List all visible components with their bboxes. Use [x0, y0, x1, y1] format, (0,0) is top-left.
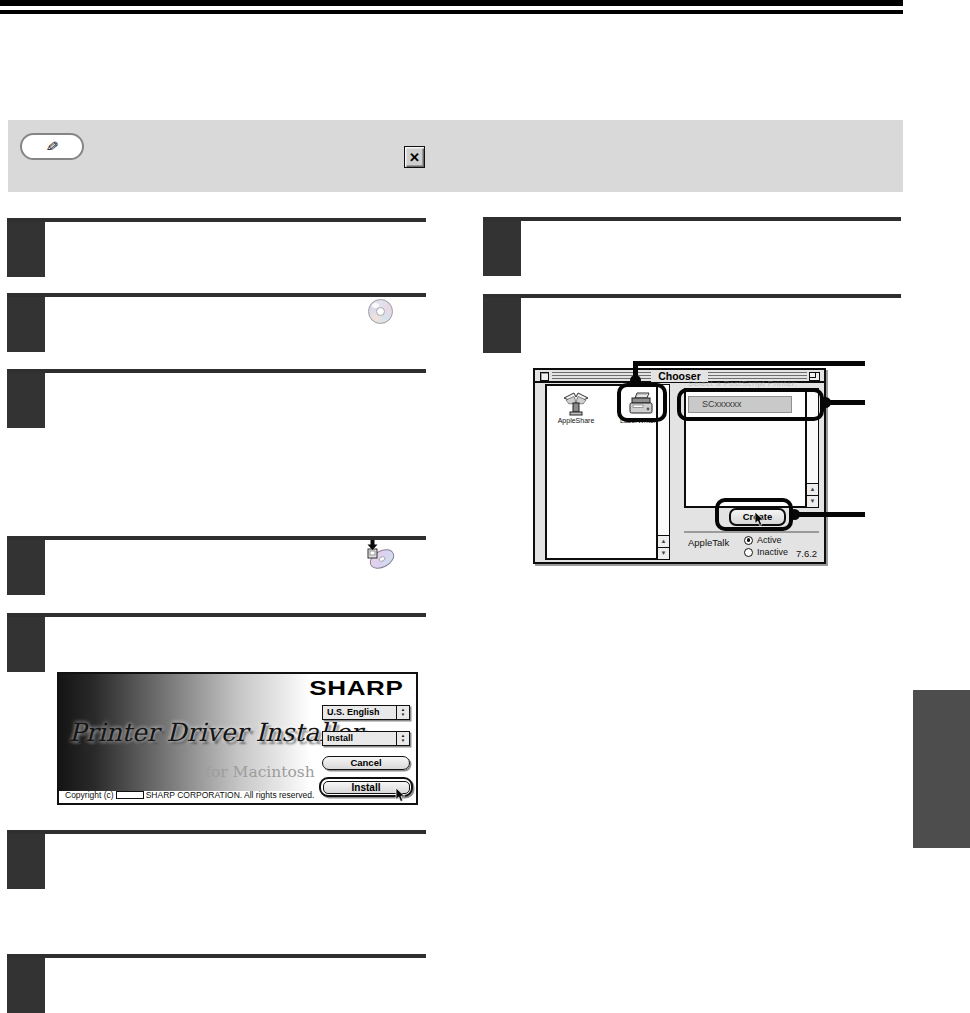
callout-line-laserwriter	[633, 361, 865, 366]
cancel-button[interactable]: Cancel	[322, 756, 410, 770]
appletalk-active-radio[interactable]: Active	[744, 535, 782, 545]
scroll-down-icon[interactable]: ▼	[658, 547, 669, 559]
step-number-box	[483, 298, 521, 353]
step-number-box	[483, 221, 521, 276]
language-dropdown[interactable]: U.S. English ▲▼	[322, 705, 410, 720]
pencil-icon: ✎	[45, 137, 60, 157]
chapter-thumb-tab	[913, 690, 970, 848]
radio-selected-icon[interactable]	[744, 536, 753, 545]
step-rule	[483, 217, 901, 221]
scroll-up-icon[interactable]: ▲	[658, 535, 669, 547]
appletalk-inactive-radio[interactable]: Inactive	[744, 547, 788, 557]
radio-label: Active	[757, 535, 782, 545]
close-box-icon[interactable]: ✕	[404, 146, 425, 168]
installer-subtitle: for Macintosh	[205, 763, 315, 781]
action-dropdown[interactable]: Install ▲▼	[322, 731, 410, 746]
action-dropdown-value: Install	[323, 732, 396, 745]
cdrom-icon	[368, 299, 393, 324]
copyright-suffix: SHARP CORPORATION. All rights reserved.	[146, 790, 315, 800]
section-divider	[684, 531, 819, 533]
appletalk-label: AppleTalk	[688, 537, 729, 548]
step-rule	[7, 954, 426, 958]
callout-line-create	[794, 512, 865, 517]
step-rule	[7, 218, 426, 222]
window-close-icon[interactable]	[540, 372, 549, 381]
step-number-box	[7, 540, 45, 595]
step-number-box	[7, 222, 45, 277]
copyright-line: Copyright (c) SHARP CORPORATION. All rig…	[65, 790, 314, 800]
step-rule	[7, 830, 426, 834]
step-number-box	[7, 834, 45, 889]
device-label: AppleShare	[553, 417, 599, 424]
page-top-rule-thick	[0, 0, 903, 6]
installer-title: Printer Driver Installer	[69, 718, 315, 747]
sharp-logo: SHARP	[310, 677, 404, 700]
popup-arrows-icon: ▲▼	[396, 706, 409, 719]
step-number-box	[7, 297, 45, 352]
radio-unselected-icon[interactable]	[744, 548, 753, 557]
cursor-icon	[754, 512, 765, 527]
copyright-prefix: Copyright (c)	[65, 790, 114, 800]
step-rule	[483, 294, 901, 298]
step-number-box	[7, 373, 45, 428]
manual-page: ✎ ✕	[0, 0, 970, 1013]
step-rule	[7, 293, 426, 297]
page-top-rule-thin	[0, 10, 903, 14]
cursor-icon	[395, 788, 406, 803]
step-number-box	[7, 958, 45, 1013]
appleshare-icon	[561, 390, 591, 416]
chooser-version: 7.6.2	[796, 548, 817, 559]
radio-label: Inactive	[757, 547, 788, 557]
scroll-down-icon[interactable]: ▼	[807, 495, 818, 507]
step-number-box	[7, 617, 45, 672]
popup-arrows-icon: ▲▼	[396, 732, 409, 745]
installer-disc-icon	[364, 540, 396, 570]
callout-line-printer-name	[826, 400, 865, 405]
callout-box-printer-name	[677, 388, 824, 421]
language-dropdown-value: U.S. English	[323, 706, 396, 719]
device-appleshare[interactable]: AppleShare	[553, 390, 599, 424]
installer-dialog: Printer Driver Installer for Macintosh S…	[57, 672, 418, 805]
printer-list-header: Select a PostScript Printer:	[688, 379, 818, 388]
scroll-up-icon[interactable]: ▲	[807, 483, 818, 495]
titlebar-stripes	[552, 372, 807, 379]
step-rule	[7, 369, 426, 373]
copyright-blank-box	[116, 791, 144, 799]
close-x-glyph: ✕	[409, 150, 420, 165]
step-rule	[7, 613, 426, 617]
callout-box-laserwriter	[617, 383, 667, 422]
note-badge: ✎	[20, 133, 84, 160]
note-box: ✎ ✕	[8, 120, 903, 192]
